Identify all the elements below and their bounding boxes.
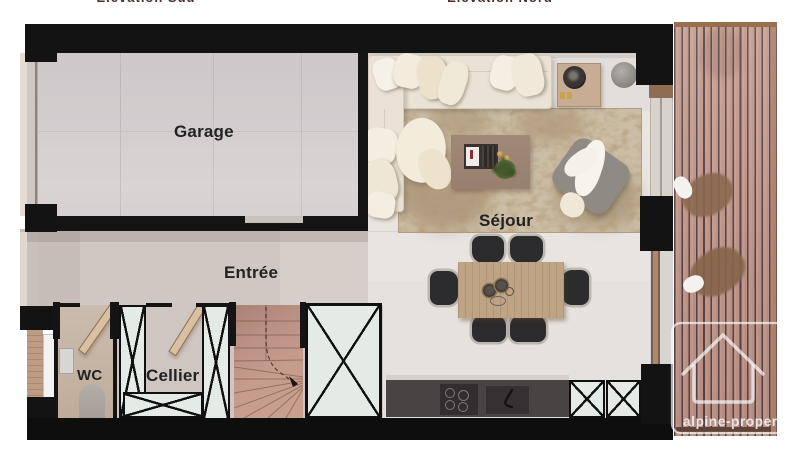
svg-text:alpine-property: alpine-property: [683, 414, 791, 429]
